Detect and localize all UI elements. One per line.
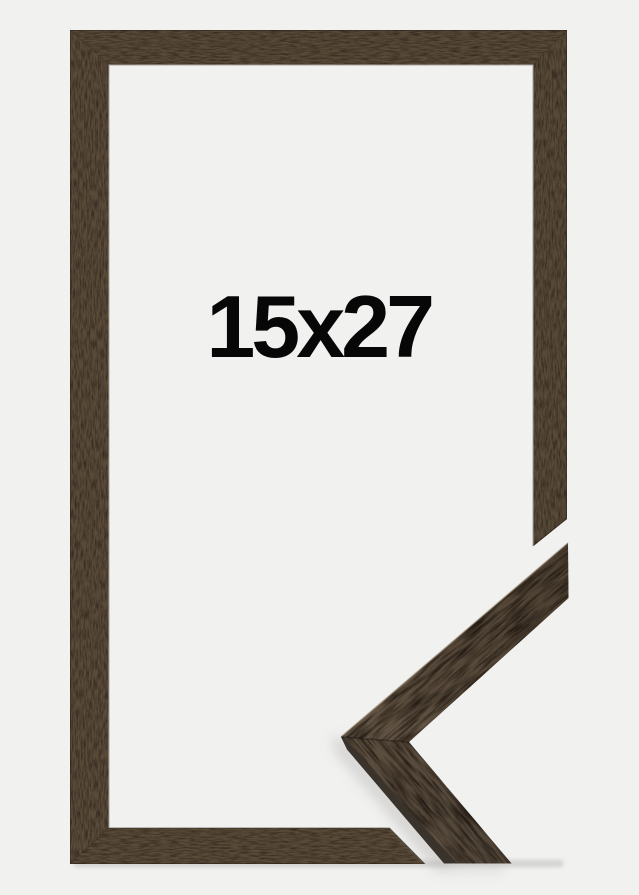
svg-text:15x27: 15x27 [206, 277, 432, 376]
